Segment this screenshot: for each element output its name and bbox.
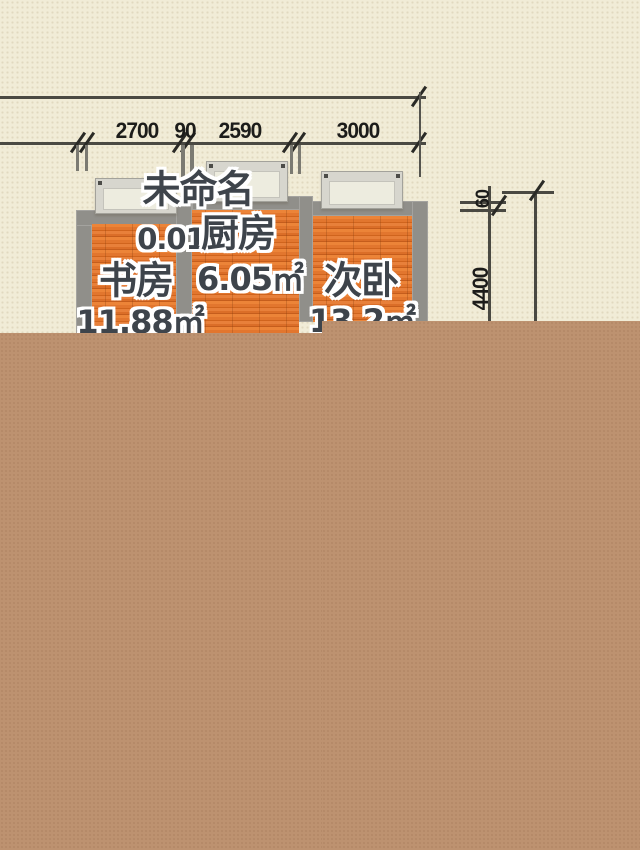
window-hinge-icon — [324, 174, 328, 178]
extension-line — [419, 92, 421, 177]
window-hinge-icon — [396, 174, 400, 178]
window-hinge-icon — [281, 164, 285, 168]
dim-label-2700: 2700 — [116, 118, 159, 144]
dimension-tick-line — [460, 209, 506, 212]
dimension-line-corner — [502, 191, 554, 194]
unrendered-area-overlay-left — [0, 333, 323, 850]
room-label-kitchen: 厨房 — [201, 203, 275, 258]
dim-label-90: 90 — [174, 118, 195, 144]
extension-line — [290, 145, 293, 174]
dim-label-3000: 3000 — [337, 118, 380, 144]
dim-label-4400: 4400 — [468, 268, 494, 311]
window-pane — [329, 181, 395, 205]
unrendered-area-overlay-right — [322, 321, 640, 850]
window-hinge-icon — [98, 181, 102, 185]
dimension-line-outer — [0, 96, 426, 99]
dim-label-60: 60 — [473, 190, 495, 208]
extension-line — [76, 145, 79, 171]
extension-line — [85, 145, 88, 171]
area-label-kitchen: 6.05㎡ — [197, 254, 303, 300]
dim-label-2590: 2590 — [219, 118, 262, 144]
extension-line — [298, 145, 301, 174]
floorplan-canvas: 2700 90 2590 3000 60 4400 0.01㎡ 未命名 厨房 6… — [0, 0, 640, 850]
window-bedroom — [321, 171, 403, 209]
